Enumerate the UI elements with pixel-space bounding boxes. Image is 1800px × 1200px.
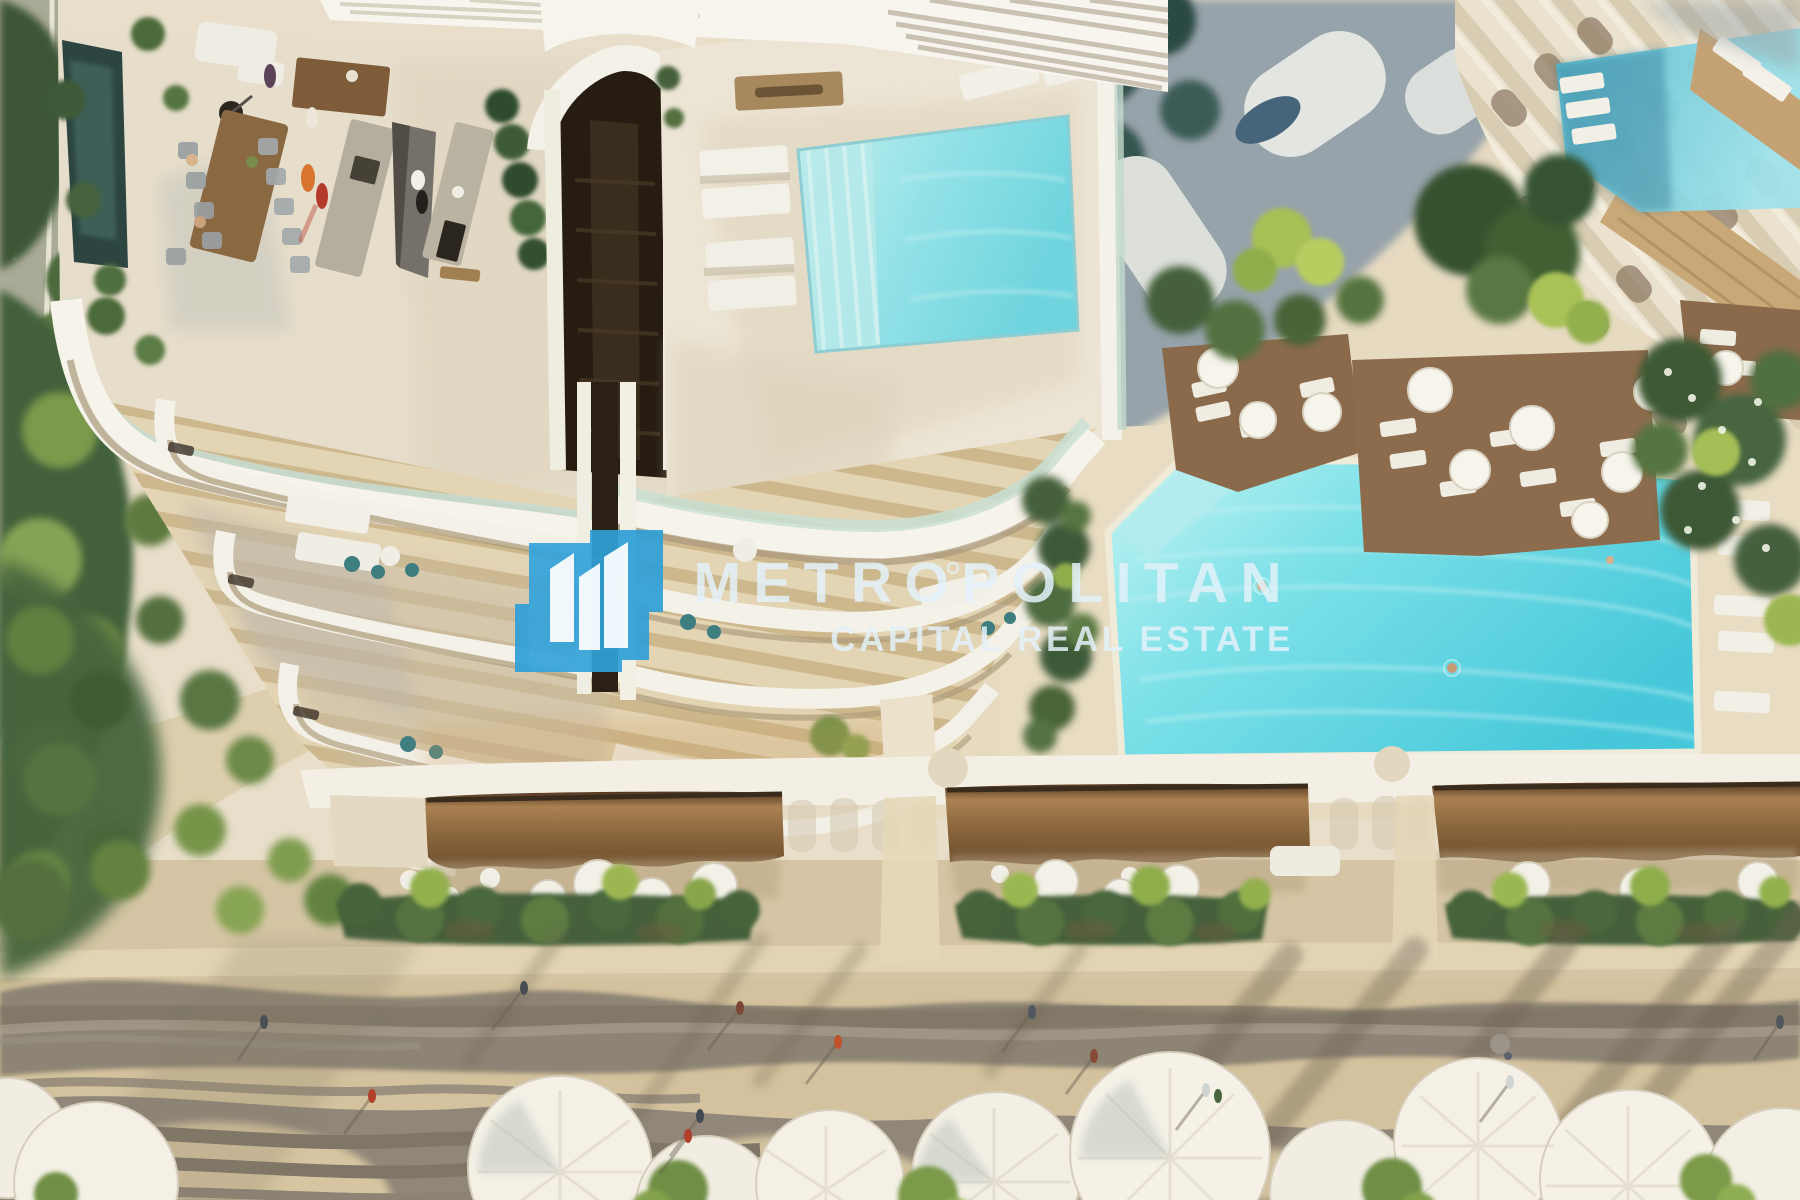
- svg-text:METROPOLITAN: METROPOLITAN: [693, 551, 1294, 615]
- svg-text:CAPITAL REAL ESTATE: CAPITAL REAL ESTATE: [830, 620, 1294, 659]
